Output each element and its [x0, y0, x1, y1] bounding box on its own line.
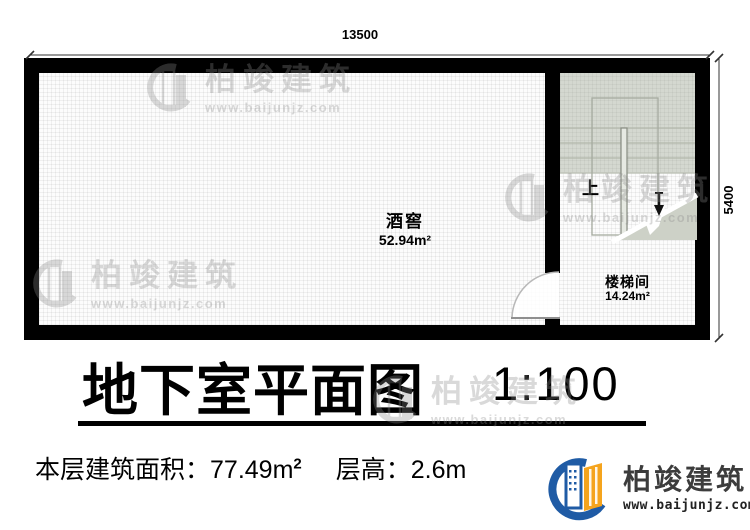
floor-area-value: 77.49m — [210, 456, 293, 484]
room-label-stairwell: 楼梯间 14.24m² — [565, 274, 690, 304]
floor-area-sup: 2 — [293, 456, 301, 473]
dimension-right-value: 5400 — [704, 176, 750, 224]
brand-footer: 柏竣建筑 www.baijunjz.com — [538, 456, 750, 522]
floor-plan-page: 13500 5400 酒窖 52.94m² 楼梯间 14.24m² 上 柏竣建筑… — [0, 0, 750, 530]
floor-area-label: 本层建筑面积： — [35, 456, 210, 484]
page-title: 地下室平面图 — [82, 346, 424, 427]
brand-logo-icon — [538, 456, 616, 522]
door-symbol — [511, 272, 560, 318]
floor-info: 本层建筑面积：77.49m2层高：2.6m — [35, 450, 466, 486]
dimension-top-value: 13500 — [280, 27, 440, 42]
room-name: 酒窖 — [330, 212, 480, 232]
title-underline — [78, 421, 646, 426]
drawing-scale: 1:100 — [492, 356, 620, 411]
room-area: 52.94m² — [330, 232, 480, 248]
room-area: 14.24m² — [565, 290, 690, 304]
floor-height-label: 层高： — [336, 456, 411, 484]
stair-up-label: 上 — [582, 174, 599, 199]
room-name: 楼梯间 — [565, 274, 690, 290]
floor-height-value: 2.6m — [411, 456, 467, 484]
room-label-cellar: 酒窖 52.94m² — [330, 212, 480, 248]
dimension-line-top — [26, 51, 714, 59]
brand-website: www.baijunjz.com — [623, 498, 750, 513]
brand-name: 柏竣建筑 — [623, 465, 750, 496]
